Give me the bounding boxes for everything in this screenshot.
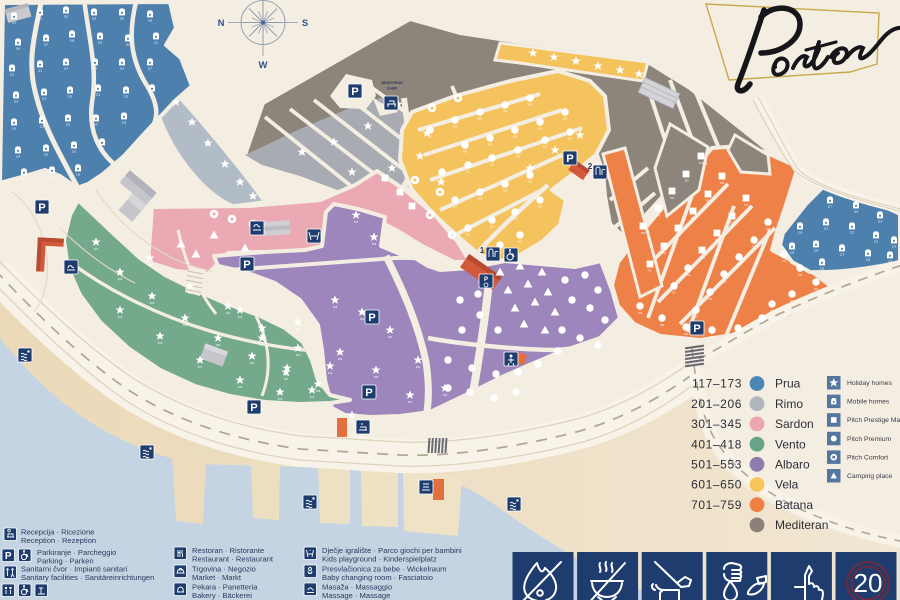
svg-text:406: 406 <box>250 361 255 365</box>
svg-text:125: 125 <box>790 251 795 255</box>
svg-text:702: 702 <box>684 178 689 182</box>
svg-text:P: P <box>351 86 359 98</box>
svg-text:418: 418 <box>238 385 243 389</box>
svg-text:607: 607 <box>488 143 493 147</box>
svg-text:132: 132 <box>100 147 105 151</box>
svg-text:409: 409 <box>148 263 153 267</box>
svg-text:718: 718 <box>766 227 771 231</box>
svg-text:410: 410 <box>188 291 193 295</box>
svg-text:Batana: Batana <box>775 498 813 512</box>
svg-text:108: 108 <box>70 39 75 43</box>
svg-text:404: 404 <box>183 323 188 327</box>
svg-text:121: 121 <box>824 227 829 231</box>
svg-text:P: P <box>38 202 46 214</box>
svg-text:120: 120 <box>68 95 73 99</box>
svg-text:118: 118 <box>14 100 19 104</box>
svg-text:102: 102 <box>64 15 69 19</box>
svg-text:523: 523 <box>416 365 421 369</box>
svg-text:729: 729 <box>638 311 643 315</box>
svg-text:403: 403 <box>150 301 155 305</box>
svg-text:706: 706 <box>720 181 725 185</box>
svg-text:Camping place: Camping place <box>847 473 893 480</box>
svg-text:714: 714 <box>715 238 720 242</box>
svg-text:618: 618 <box>478 197 483 201</box>
svg-text:Vento: Vento <box>775 437 806 451</box>
svg-text:Sanitary facilities · Sanitäre: Sanitary facilities · Sanitäreinrichtung… <box>21 573 154 582</box>
svg-text:126: 126 <box>814 249 819 253</box>
svg-text:519: 519 <box>310 395 315 399</box>
svg-text:103: 103 <box>92 17 97 21</box>
svg-text:128: 128 <box>866 258 871 262</box>
svg-text:MEDITERAN: MEDITERAN <box>381 81 403 85</box>
svg-text:119: 119 <box>42 97 47 101</box>
svg-text:712: 712 <box>744 203 749 207</box>
svg-text:N: N <box>218 18 225 29</box>
svg-text:514: 514 <box>354 220 359 224</box>
svg-text:710: 710 <box>662 251 667 255</box>
svg-text:P: P <box>693 323 701 335</box>
svg-text:402: 402 <box>118 277 123 281</box>
svg-text:130: 130 <box>44 153 49 157</box>
svg-text:128: 128 <box>122 121 127 125</box>
svg-text:113: 113 <box>38 69 43 73</box>
svg-text:405: 405 <box>216 343 221 347</box>
svg-text:117–173: 117–173 <box>692 377 742 391</box>
svg-text:610: 610 <box>563 117 568 121</box>
svg-text:415: 415 <box>118 315 123 319</box>
svg-text:2: 2 <box>588 162 593 171</box>
svg-text:P: P <box>365 387 373 399</box>
svg-text:603: 603 <box>478 117 483 121</box>
svg-text:617: 617 <box>453 205 458 209</box>
svg-text:614: 614 <box>516 155 521 159</box>
svg-text:P: P <box>368 312 376 324</box>
svg-text:601: 601 <box>428 135 433 139</box>
svg-text:605: 605 <box>528 103 533 107</box>
svg-text:117: 117 <box>148 67 153 71</box>
svg-text:516: 516 <box>238 315 243 319</box>
svg-text:622: 622 <box>490 225 495 229</box>
svg-text:P: P <box>484 277 488 283</box>
svg-text:417: 417 <box>198 365 203 369</box>
svg-text:118: 118 <box>854 210 859 214</box>
svg-text:401–418: 401–418 <box>691 437 742 451</box>
svg-text:P: P <box>566 153 574 165</box>
svg-text:110: 110 <box>126 43 131 47</box>
svg-text:S: S <box>302 18 308 29</box>
svg-text:612: 612 <box>466 170 471 174</box>
svg-text:Prua: Prua <box>775 377 801 391</box>
svg-text:P: P <box>243 259 251 271</box>
svg-text:517: 517 <box>260 343 265 347</box>
svg-text:1: 1 <box>480 246 485 255</box>
svg-text:408: 408 <box>316 389 321 393</box>
svg-text:733: 733 <box>736 333 741 337</box>
svg-text:W: W <box>259 60 268 71</box>
svg-text:726: 726 <box>814 287 819 291</box>
svg-text:114: 114 <box>64 67 69 71</box>
svg-text:719: 719 <box>751 244 756 248</box>
svg-text:Pitch Premium: Pitch Premium <box>847 436 892 443</box>
svg-text:111: 111 <box>154 41 158 45</box>
svg-text:105: 105 <box>148 19 153 23</box>
svg-text:616: 616 <box>568 137 573 141</box>
svg-text:129: 129 <box>16 155 21 159</box>
svg-text:Baby changing room · Fasciatoi: Baby changing room · Fasciatoio <box>322 573 433 582</box>
svg-text:619: 619 <box>503 189 508 193</box>
svg-text:412: 412 <box>260 333 265 337</box>
svg-text:100: 100 <box>12 21 17 25</box>
svg-text:133: 133 <box>22 177 27 181</box>
svg-text:723: 723 <box>693 314 698 318</box>
svg-text:Mobile homes: Mobile homes <box>847 399 890 406</box>
svg-text:708: 708 <box>691 216 696 220</box>
svg-text:704: 704 <box>655 213 660 217</box>
svg-text:Mediteran: Mediteran <box>775 518 828 532</box>
svg-text:107: 107 <box>44 43 49 47</box>
svg-text:521: 521 <box>360 317 365 321</box>
svg-text:131: 131 <box>72 150 77 154</box>
svg-text:720: 720 <box>737 262 742 266</box>
svg-text:P: P <box>5 551 12 562</box>
svg-text:716: 716 <box>686 273 691 277</box>
svg-text:CAMP: CAMP <box>387 87 398 91</box>
svg-text:705: 705 <box>641 231 646 235</box>
svg-text:122: 122 <box>850 231 855 235</box>
svg-text:115: 115 <box>93 67 98 71</box>
svg-text:124: 124 <box>12 127 17 131</box>
svg-text:Sardon: Sardon <box>775 417 814 431</box>
svg-text:713: 713 <box>729 220 734 224</box>
svg-text:609: 609 <box>538 127 543 131</box>
svg-text:301–345: 301–345 <box>691 417 742 431</box>
svg-text:701: 701 <box>699 161 704 165</box>
svg-text:721: 721 <box>722 279 727 283</box>
svg-text:707: 707 <box>705 198 710 202</box>
svg-text:201–206: 201–206 <box>691 397 742 411</box>
svg-text:715: 715 <box>700 255 705 259</box>
svg-text:724: 724 <box>782 259 787 263</box>
svg-text:122: 122 <box>124 95 129 99</box>
svg-text:P: P <box>250 402 258 414</box>
svg-text:419: 419 <box>278 397 283 401</box>
svg-text:709: 709 <box>676 233 681 237</box>
svg-text:Massage · Massage: Massage · Massage <box>322 591 390 600</box>
svg-text:527: 527 <box>408 400 413 404</box>
svg-text:Restaurant · Restaurant: Restaurant · Restaurant <box>192 555 274 564</box>
svg-text:620: 620 <box>528 180 533 184</box>
svg-text:701–759: 701–759 <box>691 498 742 512</box>
svg-text:615: 615 <box>543 145 548 149</box>
svg-text:602: 602 <box>453 125 458 129</box>
svg-text:134: 134 <box>50 175 55 179</box>
svg-text:401: 401 <box>94 247 99 251</box>
svg-text:732: 732 <box>710 335 715 339</box>
svg-text:117: 117 <box>828 205 833 209</box>
svg-text:528: 528 <box>374 375 379 379</box>
svg-text:129: 129 <box>888 260 893 264</box>
svg-text:728: 728 <box>770 309 775 313</box>
svg-text:Vela: Vela <box>775 478 799 492</box>
svg-text:119: 119 <box>878 220 883 224</box>
svg-text:624: 624 <box>538 205 543 209</box>
svg-text:Albaro: Albaro <box>775 458 810 472</box>
svg-text:414: 414 <box>328 371 333 375</box>
svg-text:525: 525 <box>350 420 355 424</box>
svg-text:Bakery · Bäckerei: Bakery · Bäckerei <box>192 591 252 600</box>
svg-text:515: 515 <box>372 242 377 246</box>
svg-text:109: 109 <box>98 41 103 45</box>
svg-text:116: 116 <box>120 67 125 71</box>
svg-text:722: 722 <box>708 297 713 301</box>
svg-text:125: 125 <box>40 125 45 129</box>
svg-text:121: 121 <box>96 93 101 97</box>
svg-text:Pitch Prestige Mare: Pitch Prestige Mare <box>847 417 900 424</box>
svg-text:608: 608 <box>513 135 518 139</box>
svg-text:734: 734 <box>760 323 765 327</box>
svg-text:411: 411 <box>226 311 231 315</box>
svg-text:127: 127 <box>94 123 99 127</box>
svg-text:123: 123 <box>150 93 155 97</box>
svg-text:526: 526 <box>296 327 301 331</box>
svg-text:407: 407 <box>284 377 289 381</box>
svg-text:623: 623 <box>513 217 518 221</box>
svg-text:621: 621 <box>466 233 471 237</box>
svg-text:604: 604 <box>503 110 508 114</box>
svg-text:Market · Markt: Market · Markt <box>192 573 242 582</box>
svg-text:611: 611 <box>440 177 445 181</box>
svg-text:522: 522 <box>388 335 393 339</box>
svg-text:711: 711 <box>647 268 652 272</box>
svg-text:20: 20 <box>854 568 883 598</box>
svg-text:Kids playground · Kinderspielp: Kids playground · Kinderspielplatz <box>322 555 437 564</box>
svg-text:135: 135 <box>76 173 81 177</box>
svg-text:601–650: 601–650 <box>691 478 742 492</box>
svg-text:717: 717 <box>671 290 676 294</box>
svg-text:520: 520 <box>338 357 343 361</box>
svg-text:413: 413 <box>296 353 301 357</box>
svg-text:529: 529 <box>333 305 338 309</box>
svg-text:104: 104 <box>120 17 125 21</box>
svg-text:730: 730 <box>660 323 665 327</box>
svg-text:626: 626 <box>518 240 523 244</box>
svg-text:Holiday homes: Holiday homes <box>847 380 893 387</box>
svg-text:120: 120 <box>798 231 803 235</box>
svg-text:101: 101 <box>38 17 43 21</box>
svg-text:127: 127 <box>840 253 845 257</box>
svg-text:606: 606 <box>463 150 468 154</box>
svg-text:112: 112 <box>10 73 15 77</box>
svg-text:703: 703 <box>670 196 675 200</box>
svg-text:Pitch Comfort: Pitch Comfort <box>847 454 888 461</box>
svg-text:Rimo: Rimo <box>775 397 803 411</box>
svg-text:123: 123 <box>874 240 879 244</box>
svg-text:130: 130 <box>820 267 825 271</box>
svg-text:524: 524 <box>443 393 448 397</box>
svg-text:Reception · Rezeption: Reception · Rezeption <box>21 536 96 545</box>
svg-text:124: 124 <box>892 245 897 249</box>
svg-text:416: 416 <box>158 341 163 345</box>
svg-text:613: 613 <box>490 163 495 167</box>
svg-text:501–553: 501–553 <box>691 458 742 472</box>
svg-text:106: 106 <box>16 47 21 51</box>
svg-text:725: 725 <box>798 273 803 277</box>
svg-text:126: 126 <box>66 123 71 127</box>
svg-text:727: 727 <box>790 299 795 303</box>
svg-text:731: 731 <box>684 332 689 336</box>
